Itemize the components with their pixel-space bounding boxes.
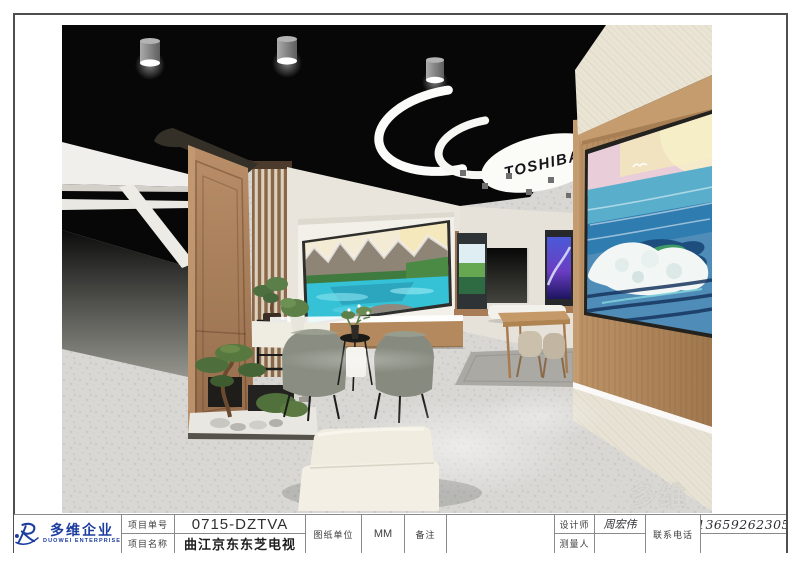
- designer-value: 周宏伟: [604, 516, 637, 532]
- project-no-label-cell: 项目单号: [122, 515, 175, 534]
- unit-value-cell: MM: [362, 515, 405, 553]
- project-no-value-cell: 0715-DZTVA: [175, 515, 306, 534]
- designer-value-cell: 周宏伟: [595, 515, 646, 534]
- duowei-logo-icon: [14, 522, 40, 546]
- green-landscape-screen: [459, 244, 485, 294]
- company-name-cn: 多维企业: [50, 523, 114, 537]
- project-name-value: 曲江京东东芝电视: [184, 534, 296, 553]
- drawing-sheet: { "company": { "name_cn": "多维企业", "name_…: [0, 0, 800, 566]
- unit-value: MM: [374, 528, 392, 540]
- project-name-value-cell: 曲江京东东芝电视: [175, 534, 306, 553]
- project-name-label: 项目名称: [128, 537, 168, 550]
- company-logo-cell: 多维企业 DUOWEI ENTERPRISE: [14, 515, 122, 553]
- surveyor-label: 测量人: [559, 537, 589, 550]
- project-name-label-cell: 项目名称: [122, 534, 175, 553]
- unit-label-cell: 图纸单位: [306, 515, 362, 553]
- designer-label: 设计师: [559, 518, 589, 531]
- project-no-label: 项目单号: [128, 518, 168, 531]
- phone-label-cell: 联系电话: [646, 515, 701, 553]
- phone-empty-cell: [701, 534, 786, 553]
- phone-label: 联系电话: [653, 528, 693, 541]
- surveyor-value-cell: [595, 534, 646, 553]
- phone-value-cell: 13659262305: [701, 515, 786, 534]
- title-block: 多维企业 DUOWEI ENTERPRISE 项目单号 0715-DZTVA 图…: [14, 514, 786, 553]
- remark-label: 备注: [415, 528, 435, 541]
- display-kiosk-green: [454, 231, 490, 316]
- project-no-value: 0715-DZTVA: [192, 516, 288, 533]
- showroom-rendering: TOSHIBA: [62, 25, 712, 513]
- surveyor-label-cell: 测量人: [555, 534, 595, 553]
- company-name-en: DUOWEI ENTERPRISE: [43, 539, 121, 545]
- phone-value: 13659262305: [701, 517, 786, 532]
- remark-label-cell: 备注: [405, 515, 447, 553]
- remark-value-cell: [447, 515, 555, 553]
- designer-label-cell: 设计师: [555, 515, 595, 534]
- unit-label: 图纸单位: [313, 528, 353, 541]
- display-kiosk-blue: [543, 230, 575, 313]
- blue-abstract-screen: [547, 237, 571, 299]
